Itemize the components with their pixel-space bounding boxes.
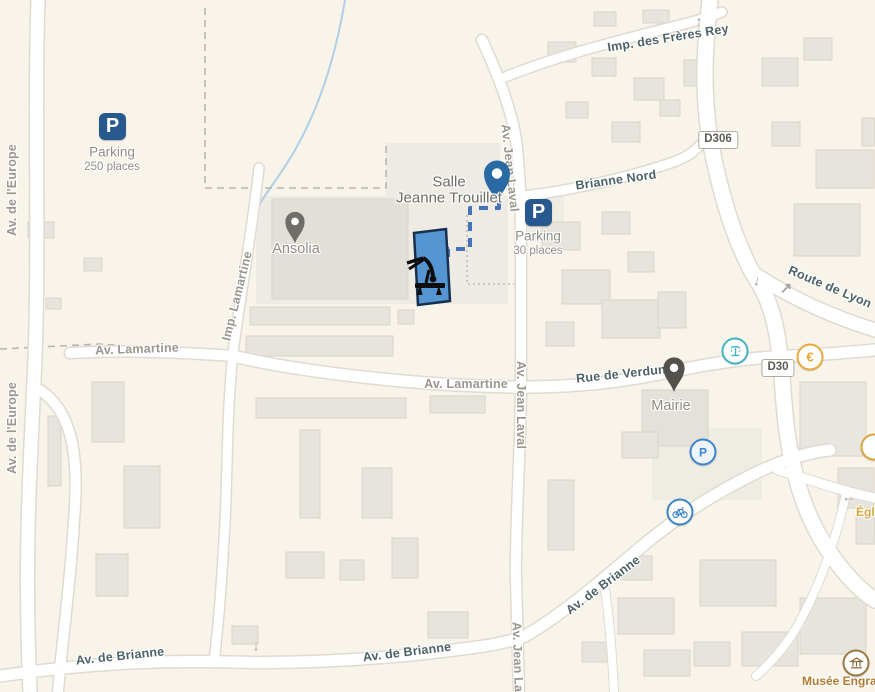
- parking-icon[interactable]: P: [99, 113, 126, 140]
- building: [694, 642, 730, 666]
- fountain-icon[interactable]: [722, 338, 749, 365]
- venue-pin-icon[interactable]: [481, 158, 513, 204]
- building: [602, 300, 660, 338]
- parking-circle-icon[interactable]: P: [690, 439, 717, 466]
- road-ref-badge-d306: D306: [698, 131, 738, 149]
- euro-poi-icon[interactable]: €: [797, 344, 824, 371]
- road-imp-lamartine: [214, 168, 259, 662]
- building: [622, 432, 658, 458]
- building: [246, 336, 393, 356]
- ansolia-pin-icon[interactable]: [283, 210, 307, 244]
- building: [256, 398, 406, 418]
- building: [592, 58, 616, 76]
- building: [700, 560, 776, 606]
- mairie-pin-icon[interactable]: [661, 355, 687, 393]
- building: [392, 538, 418, 578]
- building: [566, 102, 588, 118]
- bicycle-icon[interactable]: [667, 499, 694, 526]
- building: [286, 552, 324, 578]
- building: [48, 416, 61, 486]
- buildings-layer: [28, 10, 875, 676]
- building: [542, 222, 580, 250]
- building: [84, 258, 102, 271]
- building: [96, 554, 128, 596]
- building: [643, 10, 669, 23]
- building: [46, 298, 61, 309]
- building: [594, 12, 616, 26]
- road-av-lamartine: [70, 352, 233, 356]
- building: [430, 396, 485, 413]
- parking-letter: P: [532, 201, 545, 224]
- building: [602, 212, 630, 234]
- building: [618, 598, 674, 634]
- parking-icon[interactable]: P: [525, 199, 552, 226]
- building: [362, 468, 392, 518]
- museum-icon[interactable]: [843, 650, 870, 677]
- boundary-line: [205, 8, 386, 188]
- building: [644, 650, 690, 676]
- building: [628, 252, 654, 272]
- building: [862, 118, 875, 146]
- building: [548, 480, 574, 550]
- building: [546, 322, 574, 346]
- building: [250, 307, 390, 325]
- building: [124, 466, 160, 528]
- building: [856, 516, 875, 544]
- building: [92, 382, 124, 442]
- parking-letter: P: [106, 115, 119, 138]
- building: [804, 38, 832, 60]
- building: [428, 612, 468, 638]
- building: [300, 430, 320, 518]
- building: [634, 78, 664, 100]
- parking-letter: P: [699, 445, 707, 459]
- building: [340, 560, 364, 580]
- building: [762, 58, 798, 86]
- building: [658, 292, 686, 328]
- map-canvas[interactable]: Av. de l'Europe Av. de l'Europe Imp. Lam…: [0, 0, 875, 692]
- road-ref-badge-d30: D30: [761, 359, 794, 377]
- building: [398, 310, 414, 324]
- building: [582, 642, 608, 662]
- building: [232, 626, 258, 644]
- building: [794, 204, 860, 256]
- building: [562, 270, 610, 304]
- building: [660, 100, 680, 116]
- building: [612, 122, 640, 142]
- building: [816, 150, 874, 188]
- euro-glyph: €: [806, 350, 813, 365]
- building: [772, 122, 800, 146]
